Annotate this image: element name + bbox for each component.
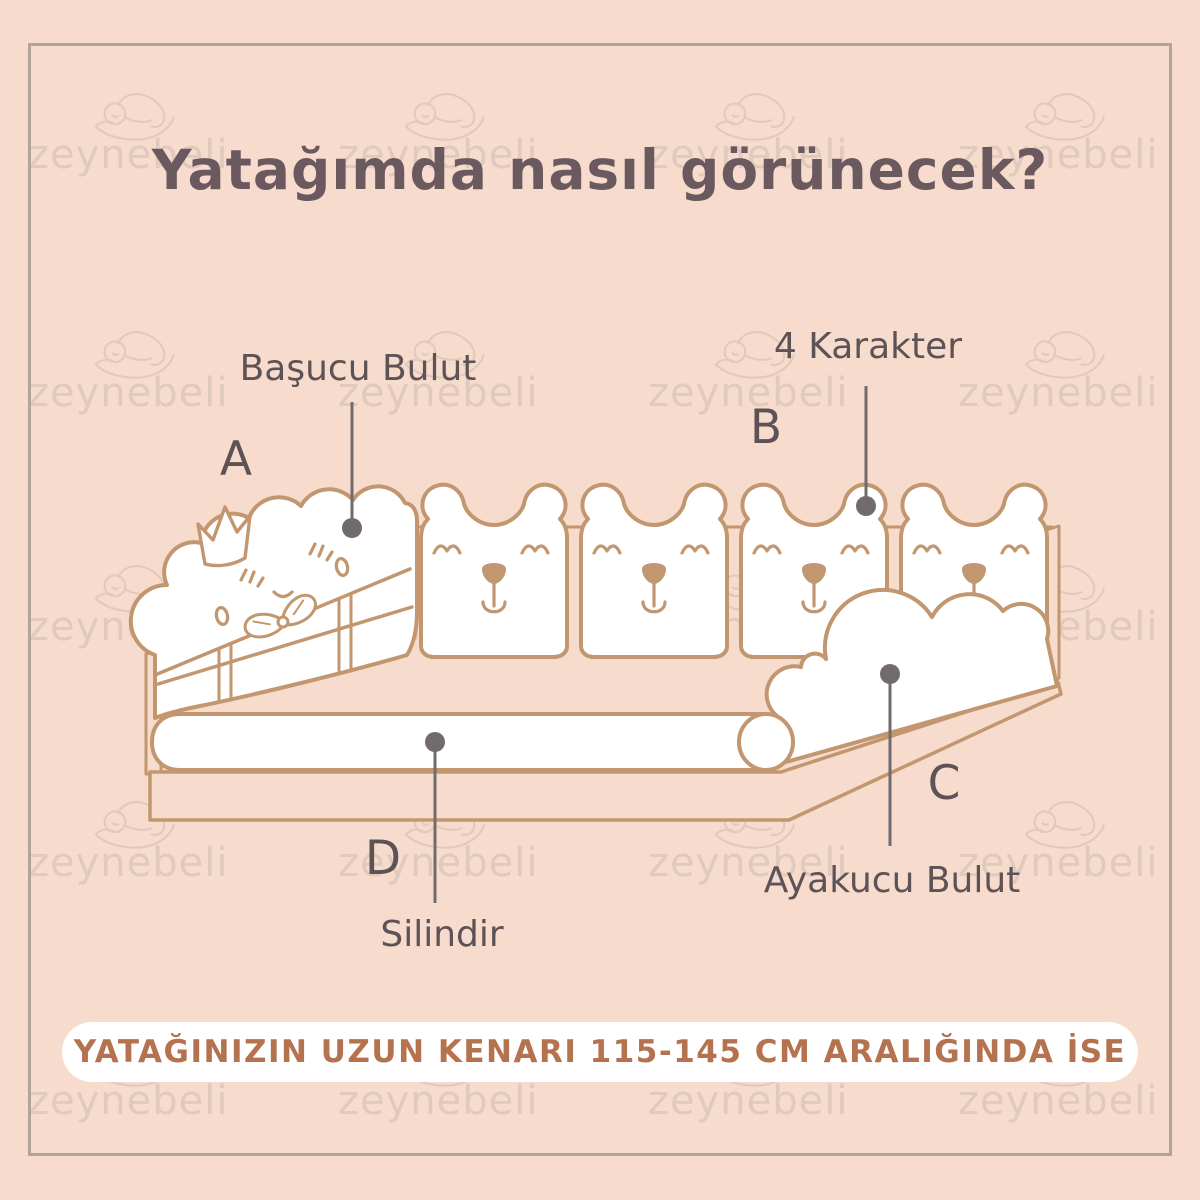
part-a-letter: A xyxy=(220,432,252,487)
leader-dot-a xyxy=(342,518,362,538)
infographic-page: zeynebelizeynebelizeynebelizeynebelizeyn… xyxy=(0,0,1200,1200)
bear-pillow-1 xyxy=(421,485,567,657)
size-banner: YATAĞINIZIN UZUN KENARI 115-145 CM ARALI… xyxy=(62,1022,1138,1082)
part-c-label: Ayakucu Bulut xyxy=(764,860,1021,901)
part-d-letter: D xyxy=(365,831,401,886)
bed-diagram xyxy=(0,0,1200,1200)
cylinder-bolster xyxy=(152,714,793,770)
leader-dot-d xyxy=(425,732,445,752)
part-b-label: 4 Karakter xyxy=(774,326,962,367)
headboard-cloud-shape xyxy=(131,486,417,718)
part-b-letter: B xyxy=(750,400,782,455)
bear-pillow-2 xyxy=(581,485,727,657)
part-a-label: Başucu Bulut xyxy=(240,348,477,389)
leader-dot-c xyxy=(880,664,900,684)
cylinder-body xyxy=(152,714,766,770)
part-d-label: Silindir xyxy=(380,914,503,955)
leader-dot-b xyxy=(856,496,876,516)
headboard-cloud xyxy=(131,486,417,718)
size-banner-text: YATAĞINIZIN UZUN KENARI 115-145 CM ARALI… xyxy=(74,1034,1126,1070)
cylinder-end-cap xyxy=(739,714,793,770)
part-c-letter: C xyxy=(928,756,961,811)
